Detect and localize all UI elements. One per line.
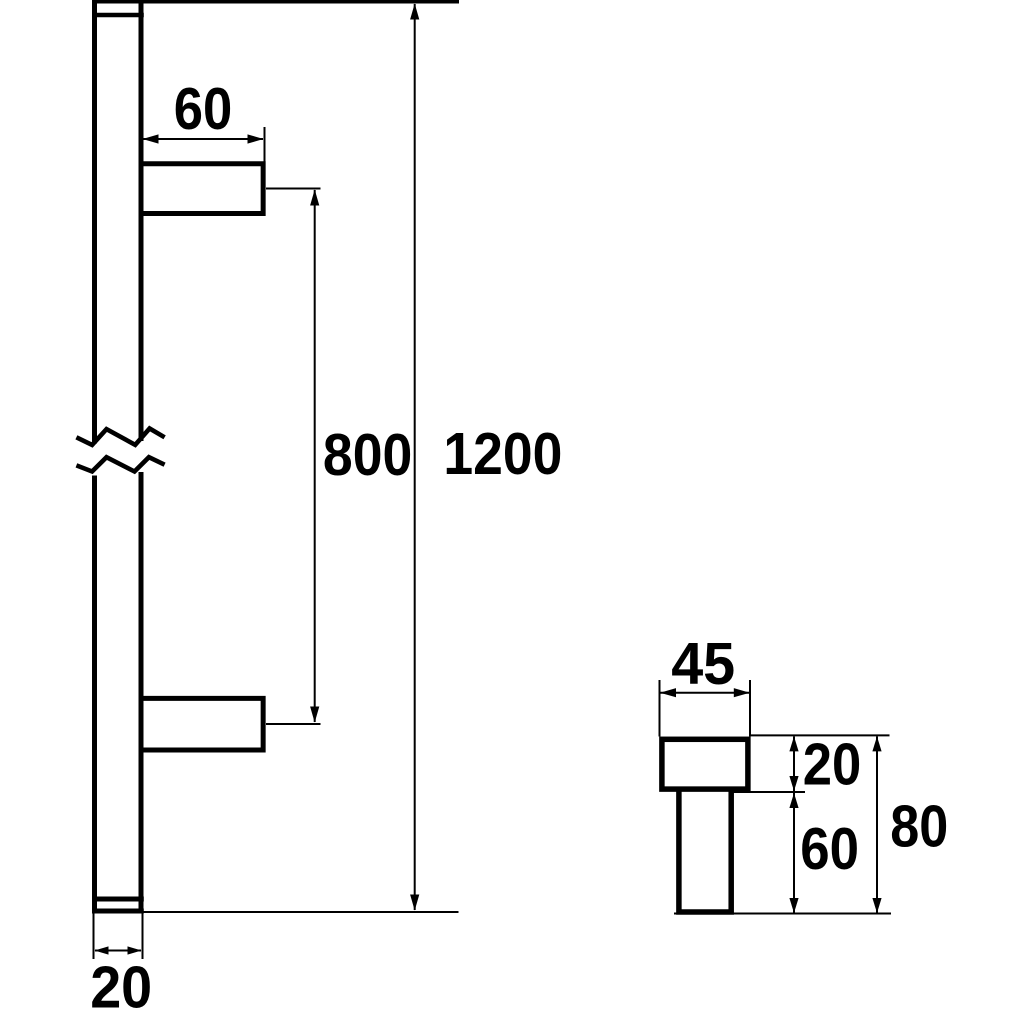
svg-text:20: 20	[803, 731, 862, 798]
svg-text:45: 45	[671, 630, 735, 697]
svg-text:80: 80	[890, 792, 948, 859]
svg-text:1200: 1200	[443, 420, 562, 487]
svg-text:60: 60	[800, 815, 859, 882]
svg-text:20: 20	[90, 953, 152, 1020]
svg-text:60: 60	[174, 75, 233, 142]
svg-text:800: 800	[323, 421, 412, 488]
